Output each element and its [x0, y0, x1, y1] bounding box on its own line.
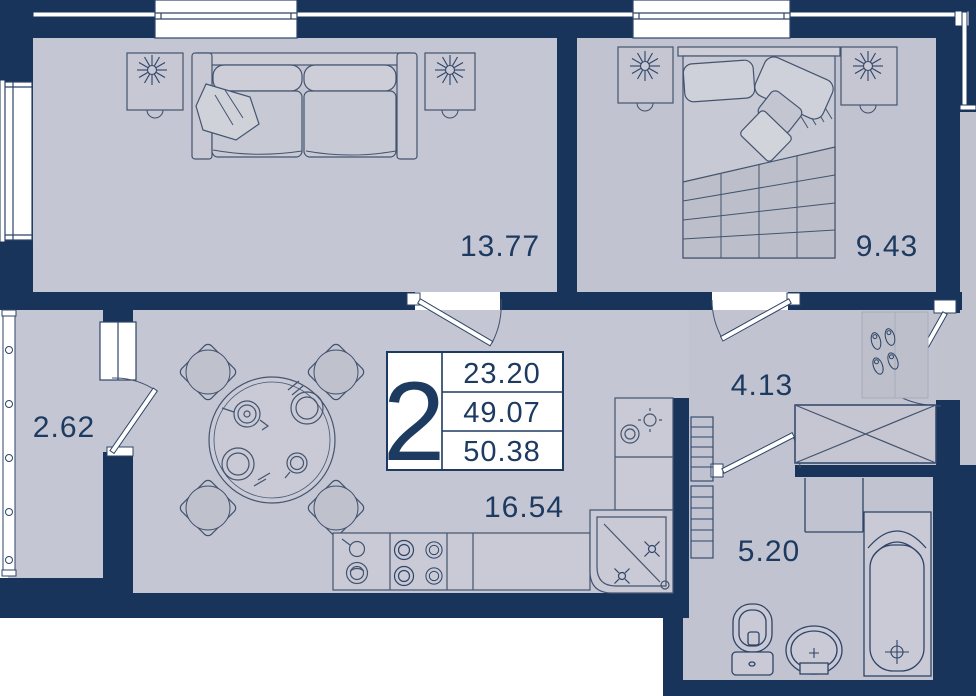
wall-kitchen-hall-divider — [673, 398, 689, 618]
wall-bathroom-top — [795, 465, 936, 477]
kitchen-counter-icon — [333, 533, 590, 590]
wall-bathroom-bottom — [663, 680, 976, 696]
bathroom-area-label: 5.20 — [738, 535, 800, 568]
living-room-window-left — [5, 82, 32, 240]
wall-right-upper — [936, 38, 960, 313]
bedroom-window-top — [633, 0, 790, 38]
wardrobe-icon — [795, 405, 936, 463]
side-table-left-icon — [127, 53, 183, 118]
facade-line-right — [962, 12, 967, 109]
wall-top — [0, 0, 962, 38]
toilet-icon — [732, 604, 773, 675]
wall-bottom — [0, 593, 683, 618]
facade-line-right-end — [960, 105, 976, 110]
outside-corridor-strip — [960, 112, 976, 480]
bedroom-area-label: 9.43 — [856, 230, 918, 263]
nightstand-right-icon — [841, 47, 897, 113]
nightstand-left-icon — [618, 47, 673, 111]
balcony-area-label: 2.62 — [33, 411, 95, 444]
wall-balcony-divider — [103, 452, 133, 578]
floor-plan-canvas: 13.77 9.43 2.62 4.13 16.54 5.20 2 23.20 … — [0, 0, 976, 696]
corner-sink-icon — [590, 510, 673, 593]
legend-rooms-count: 2 — [383, 359, 445, 484]
washbasin-icon — [786, 626, 842, 674]
wall-mid-left — [0, 292, 415, 310]
legend-row3-value: 50.38 — [463, 436, 541, 468]
pillow-icon — [683, 60, 755, 103]
bathtub-icon — [864, 512, 931, 676]
legend-row1-value: 23.20 — [463, 358, 541, 390]
floor-plan: 13.77 9.43 2.62 4.13 16.54 5.20 2 23.20 … — [0, 0, 976, 696]
kitchen-area-label: 16.54 — [484, 491, 564, 524]
wall-living-bedroom-divider — [557, 35, 577, 310]
wall-bathroom-right — [933, 465, 976, 696]
shoe-mat-icon — [862, 312, 928, 398]
balcony-floor — [8, 310, 103, 578]
wall-mid-center — [500, 292, 712, 310]
balcony-window — [100, 322, 136, 380]
legend-row2-value: 49.07 — [463, 397, 541, 429]
balcony-glazing — [2, 310, 16, 576]
side-table-right-icon — [425, 53, 475, 118]
bed-icon — [678, 47, 840, 258]
living-room-area-label: 13.77 — [460, 230, 540, 263]
hallway-area-label: 4.13 — [731, 369, 793, 402]
dining-table-icon — [209, 377, 335, 503]
wall-bathroom-left — [663, 610, 683, 696]
living-room-window-top — [155, 0, 297, 38]
legend: 2 23.20 49.07 50.38 — [383, 352, 563, 484]
facade-line-left — [0, 80, 5, 242]
kitchen-side-counter-icon — [615, 398, 673, 510]
